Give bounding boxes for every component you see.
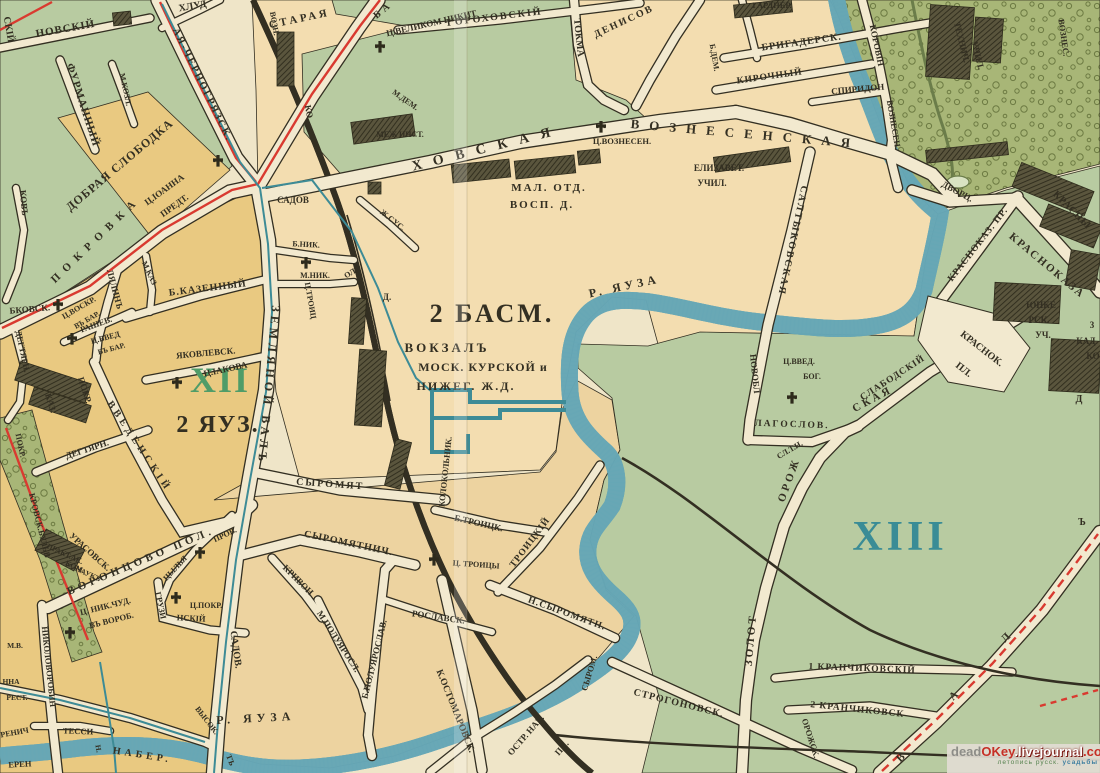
label-ts-vved-2: БОГ. xyxy=(803,372,821,381)
label-eren: ЕРЕН xyxy=(8,758,32,769)
label-yauz-2: 2 ЯУЗ. xyxy=(176,412,259,438)
watermark-livejournal: .livejournal xyxy=(1014,744,1083,759)
label-rest: РЕСТ. xyxy=(6,693,27,702)
label-basm-2: 2 БАСМ. xyxy=(430,299,555,328)
paper-fold xyxy=(454,0,467,773)
label-ts-pokr: Ц.ПОКР. xyxy=(190,601,222,610)
label-ts-voznesen: Ц.ВОЗНЕСЕН. xyxy=(593,136,651,146)
label-mal-otd-1: МАЛ. ОТД. xyxy=(511,182,587,194)
city-map: СКІЙНОВСКІЙМ.КОЗЛ.ФУРМАННЫЙХЛУДКОВЪБКОВС… xyxy=(0,0,1100,773)
building-kursk-station xyxy=(354,349,386,427)
label-gardner: ГАРДНЕР. xyxy=(752,0,791,10)
map-canvas: СКІЙНОВСКІЙМ.КОЗЛ.ФУРМАННЫЙХЛУДКОВЪБКОВС… xyxy=(0,0,1100,773)
label-nskiy: НСКІЙ xyxy=(176,612,206,624)
label-d-lane: Д. xyxy=(383,292,391,302)
label-m-v: М.В. xyxy=(7,641,23,650)
label-kadet-kad: КАД. xyxy=(1076,336,1097,346)
district-blocks xyxy=(0,0,1100,773)
label-val-d: Д xyxy=(1076,394,1083,405)
label-sadov-top: САДОВ xyxy=(277,195,309,205)
label-vokzal-2: МОСК. КУРСКОЙ и xyxy=(418,360,548,374)
label-elizavet-1: ЕЛИЗАВЕТ. xyxy=(694,163,744,173)
label-elizavet-2: УЧИЛ. xyxy=(697,178,726,188)
watermark: deadOKey.livejournal.com летопись русск.… xyxy=(947,744,1100,773)
label-mezh-inst: МЕЖ ИНСТ. xyxy=(376,130,424,139)
label-yunkersk-2: РСК. xyxy=(1029,315,1050,325)
label-tessi: ТЕССИ xyxy=(63,725,94,736)
building-station-shed xyxy=(348,298,366,345)
label-district-xiii: XIII xyxy=(852,514,947,560)
label-val-tv: Ъ xyxy=(1078,517,1086,528)
label-kadet-3: 3 xyxy=(1090,320,1095,330)
label-ts-vved-1: Ц.ВВЕД. xyxy=(783,357,815,366)
watermark-subtitle: летопись русск. усадьбы xyxy=(951,759,1098,766)
label-yunkersk-1: ЮНКЕ xyxy=(1026,300,1056,310)
label-yunkersk-3: УЧ. xyxy=(1035,330,1050,340)
watermark-sub1: летопись русск. xyxy=(998,759,1063,766)
label-kadet-ko: КО xyxy=(1086,351,1099,361)
building-small-2 xyxy=(577,149,600,165)
label-b-nik: Б.НИК. xyxy=(292,239,320,249)
building-cadet-corps xyxy=(1049,339,1100,394)
label-vokzal-1: ВОКЗАЛЪ xyxy=(404,340,489,355)
watermark-okey: OKey xyxy=(981,744,1014,759)
building-small-1 xyxy=(368,182,381,194)
street xyxy=(278,282,354,284)
building-khlud xyxy=(112,11,131,26)
label-m-nik: М.НИК. xyxy=(300,271,330,280)
watermark-com: .com xyxy=(1083,744,1100,759)
label-mal-otd-2: ВОСП. Д. xyxy=(510,199,574,211)
watermark-dead: dead xyxy=(951,744,981,759)
watermark-sub2: усадьбы xyxy=(1063,759,1098,766)
watermark-url: deadOKey.livejournal.com xyxy=(951,745,1098,759)
building-basmannaya xyxy=(277,32,294,86)
label-nna: ННА xyxy=(2,677,20,686)
